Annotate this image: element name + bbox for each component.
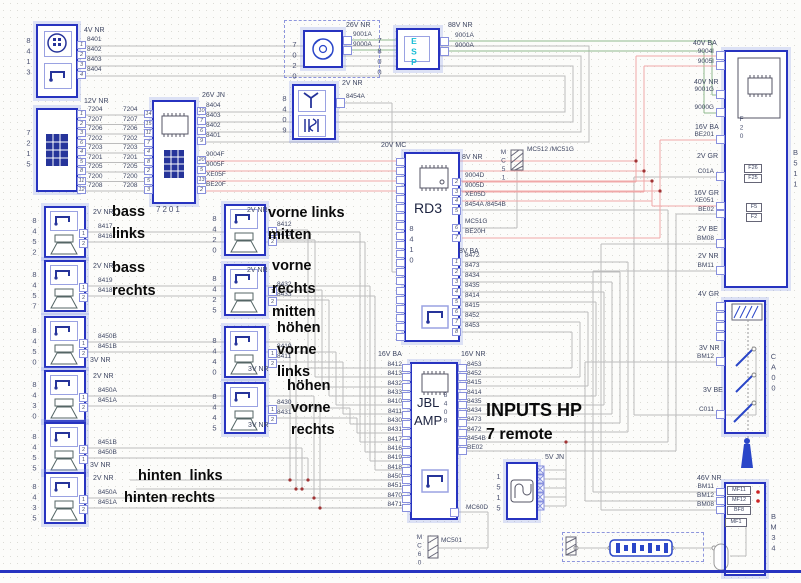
connector-icon: [422, 306, 448, 328]
speaker-icon: [49, 398, 81, 420]
pin: 2: [79, 239, 88, 248]
connector-label: 3V BE: [703, 387, 723, 394]
pin: 2: [268, 415, 277, 424]
wire-label: 8451B: [98, 343, 117, 350]
pin: 1: [268, 349, 277, 358]
page-border-bottom: [0, 570, 801, 573]
connector-label: 2V NR: [247, 207, 268, 214]
cd-disc-icon: [305, 32, 341, 66]
wire-label: 8431: [277, 409, 291, 416]
pin: 2: [79, 293, 88, 302]
wire-label: 8419: [98, 277, 112, 284]
wires-7215-left: 720472077206720272037201720572007208: [88, 107, 102, 193]
pin: 1: [79, 283, 88, 292]
amp-name-2: AMP: [414, 413, 442, 428]
wires-7201-red: 9004F9005FXE05FBE20F: [206, 152, 226, 192]
connector-label: 2V NR: [93, 209, 114, 216]
pins-amp-left: [402, 364, 411, 513]
connector-label: 2V GR: [697, 153, 718, 160]
rd3-name: RD3: [414, 200, 442, 216]
speaker-icon: [49, 500, 81, 522]
optional-box-battery: [562, 532, 704, 562]
connector-label: 2V BE: [698, 226, 718, 233]
pins-7201-left: 141511748253: [144, 110, 153, 196]
connector-icon: [50, 427, 78, 447]
relay-icon: [508, 464, 536, 518]
speaker-id: 8457: [30, 270, 39, 312]
connector-label: 4V NR: [84, 27, 105, 34]
annotation-hinten-rechts: hinten rechts: [124, 490, 215, 506]
wire-label: MC501: [441, 537, 462, 544]
wire-label: BE02: [686, 206, 714, 213]
pin: 1: [79, 339, 88, 348]
block-ca00: [724, 300, 766, 434]
connector-label: 3V NR: [248, 366, 269, 373]
pins-amp-right: [458, 364, 467, 456]
fuse-f25: F25: [744, 174, 762, 183]
connector-label: 16V BA: [378, 351, 402, 358]
block-1515: [506, 462, 538, 520]
block-id-7020: 7020: [290, 40, 299, 82]
wire-label: 8454A: [346, 93, 365, 100]
amp-name-1: JBL: [417, 395, 439, 410]
connector-label: 26V JN: [202, 92, 225, 99]
wires-7201-gray: 8404840384028401: [206, 103, 220, 143]
pins-rd3-top: 2345: [452, 178, 461, 216]
wires-rd3-bottom: 84728473843484358414841584528453: [465, 253, 479, 333]
block-id-7201: 7201: [156, 205, 182, 214]
connector-label: 3V NR: [90, 357, 111, 364]
wire-label: 8450B: [98, 449, 117, 456]
block-id-1515: 1515: [494, 472, 503, 514]
connector-label: 4V GR: [698, 291, 719, 298]
ground-id-mc60: MC60: [416, 534, 423, 568]
speaker-8455: 2 1: [44, 422, 86, 474]
pin: [440, 37, 449, 46]
connector-label: 40V BA: [693, 40, 717, 47]
speaker-8452: 1 2: [44, 206, 86, 258]
speaker-8457: 1 2: [44, 260, 86, 312]
connector-label: 16V NR: [461, 351, 486, 358]
annotation-hoehen-rechts-1: höhen: [287, 378, 331, 394]
block-8409: [292, 84, 336, 140]
coil-icon: [298, 115, 326, 137]
antenna-mast-icon: [741, 438, 753, 468]
pins-7215: 12364581112: [77, 110, 86, 196]
wire-label: C011: [686, 406, 714, 413]
speaker-id: 8425: [210, 274, 219, 316]
chip-icon: [748, 75, 772, 97]
wire-label: 8451B: [98, 439, 117, 446]
connector-label: 3V NR: [90, 462, 111, 469]
wires-amp-left: 8412841384328433841084118430843184178416…: [376, 362, 402, 511]
speaker-8430: 1 2: [44, 370, 86, 422]
wires-amp-right: 845384528415841484358434847384728454BBE0…: [467, 362, 486, 454]
speaker-icon: [49, 450, 81, 472]
connector-label: 2V NR: [93, 263, 114, 270]
pins-rd3-left: [396, 158, 405, 342]
fuse-mf11: MF11: [727, 486, 751, 495]
connector-label: 26V NR: [346, 22, 371, 29]
chip-icon: [162, 113, 188, 137]
block-jbl-amp: [410, 362, 458, 520]
fuse-mf12: MF12: [727, 496, 751, 505]
speaker-icon: [49, 288, 81, 310]
wire-label: 8417: [98, 223, 112, 230]
speaker-icon: [49, 344, 81, 366]
speaker-id: 8430: [30, 380, 39, 422]
esp-label: ESP: [409, 36, 419, 68]
wire-label: 9000A: [455, 42, 474, 49]
pins-rd3-bottom: 12345678: [452, 258, 461, 338]
connector-icon: [50, 321, 78, 341]
connector-label: 3V NR: [699, 345, 720, 352]
pin: [336, 98, 345, 108]
connector-label: 8V NR: [462, 154, 483, 161]
wire-label: 8451A: [98, 397, 117, 404]
block-id-8413: 8413: [24, 36, 33, 78]
connector-icon: [50, 211, 78, 231]
connector-label: 2V NR: [247, 267, 268, 274]
wire-label: BM11: [686, 483, 714, 490]
pins-7201-right-gray: 10769: [197, 107, 206, 147]
connector-label: 46V NR: [697, 475, 722, 482]
connector-label: 88V NR: [448, 22, 473, 29]
annotation-hoehen-rechts-2: vorne: [291, 400, 331, 416]
speaker-icon: [49, 234, 81, 256]
wires-7215-right: 720472077206720272037201720572007208: [123, 107, 137, 193]
wire-label: 8430: [277, 399, 291, 406]
block-id-ca00: CA00: [769, 352, 778, 394]
wire-label: MC60D: [466, 504, 488, 511]
speaker-id: 8452: [30, 216, 39, 258]
connector-label: 3V NR: [248, 422, 269, 429]
block-7215: [36, 108, 78, 192]
wires-rd3-top: 9004D9005DXE05D8454A /8454B: [465, 173, 506, 211]
connector-icon: [422, 470, 448, 492]
fuse-f2: F2: [746, 213, 762, 222]
wire-label: BM12: [686, 353, 714, 360]
connector-icon: [50, 265, 78, 285]
annotation-vorne-links-2: mitten: [268, 227, 312, 243]
pins-7201-right-red: 205132: [197, 156, 206, 196]
ground-label: MC512 /MC51G: [527, 146, 574, 153]
annotation-bass-links-1: bass: [112, 204, 145, 220]
pin: 1: [79, 393, 88, 402]
pins-8413: 1234: [77, 41, 86, 81]
wire-label: 8450A: [98, 387, 117, 394]
wire-label: XE051: [686, 197, 714, 204]
annotation-hinten-links: hinten links: [138, 468, 223, 484]
speaker-id: 8440: [210, 336, 219, 378]
annotation-7-remote: 7 remote: [486, 426, 553, 444]
fuse-f5: F5: [746, 203, 762, 212]
wire-label: 8418: [98, 287, 112, 294]
wires-8413: 8401840284038404: [87, 37, 101, 77]
wire-label: 9001A: [455, 32, 474, 39]
block-7201: [152, 100, 196, 204]
wire-label: C01A: [686, 168, 714, 175]
connector-label: 2V NR: [342, 80, 363, 87]
wire-label: BM11: [686, 262, 714, 269]
wire-label: 9001A: [353, 31, 372, 38]
pin: [440, 47, 449, 56]
pin: 1: [268, 405, 277, 414]
connector-icon: [230, 331, 258, 351]
wire-label: 8450B: [98, 333, 117, 340]
wire-label: 9000G: [686, 104, 714, 111]
annotation-vorne-rechts-2: rechts: [272, 281, 316, 297]
speaker-8435: 1 2: [44, 472, 86, 524]
pin: 1: [79, 229, 88, 238]
annotation-vorne-links-1: vorne links: [268, 205, 345, 221]
wire-label: 9000A: [353, 41, 372, 48]
fuse-bf8: BF8: [727, 506, 751, 515]
annotation-bass-rechts-1: bass: [112, 260, 145, 276]
wire-label: 9004I: [686, 48, 714, 55]
speaker-icon: [229, 292, 261, 314]
block-id-b511: B511: [791, 148, 800, 190]
grid-connector-icon: [38, 110, 76, 190]
pin: [450, 508, 459, 517]
block-id-8408: 8408: [442, 392, 449, 426]
pin: 1: [79, 495, 88, 504]
annotation-vorne-rechts-3: mitten: [272, 304, 316, 320]
speaker-id: 8435: [30, 482, 39, 524]
connector-label: 2V NR: [93, 475, 114, 482]
connector-label: 12V NR: [84, 98, 109, 105]
wires-rd3-top2: MC51GBE20H: [465, 219, 487, 239]
wiring-diagram: 8413 1234 4V NR 8401840284038404 7215 12…: [0, 0, 801, 583]
grid-connector-icon: [164, 150, 184, 178]
antenna-icon: [298, 90, 326, 112]
block-8413: [36, 24, 78, 98]
connector-label: 20V MC: [381, 142, 406, 149]
connector-label: 16V GR: [694, 190, 719, 197]
pin: [343, 36, 352, 45]
wire-label: 9001G: [686, 86, 714, 93]
pin: 2: [79, 349, 88, 358]
wire-label: 8450A: [98, 489, 117, 496]
connector-icon: [44, 63, 72, 89]
wire-label: 8416: [98, 233, 112, 240]
pin: 2: [79, 445, 88, 454]
annotation-bass-rechts-2: rechts: [112, 283, 156, 299]
annotation-vorne-rechts-1: vorne: [272, 258, 312, 274]
pin: 2: [79, 505, 88, 514]
ground-mc60-icon: [428, 536, 438, 558]
block-7020: [303, 30, 343, 68]
pin: [343, 46, 352, 55]
pin: 1: [79, 455, 88, 464]
speaker-id: 8420: [210, 214, 219, 256]
wire-label: 8451A: [98, 499, 117, 506]
speaker-8450: 1 2: [44, 316, 86, 368]
pins-rd3-top2: 67: [452, 224, 461, 244]
wire-label: BM08: [686, 235, 714, 242]
block-id-8409: 8409: [280, 94, 289, 136]
steering-wheel-icon: [44, 31, 72, 57]
block-id-7215: 7215: [24, 128, 33, 170]
pin: 2: [268, 359, 277, 368]
fuse-mf1: MF1: [725, 518, 747, 527]
fuse-label-f20: F20: [738, 116, 745, 142]
connector-label: 2V NR: [698, 253, 719, 260]
speaker-id: 8455: [30, 432, 39, 474]
connector-icon: [50, 375, 78, 395]
pin: 2: [79, 403, 88, 412]
connector-label: 5V JN: [545, 454, 564, 461]
annotation-inputs-hp: INPUTS HP: [486, 400, 582, 421]
connector-label: 40V NR: [694, 79, 719, 86]
connector-label: 2V NR: [93, 373, 114, 380]
connector-icon: [230, 387, 258, 407]
annotation-bass-links-2: links: [112, 226, 145, 242]
wire-label: BM12: [686, 492, 714, 499]
wire-label: BM08: [686, 501, 714, 508]
fuse-f26: F26: [744, 164, 762, 173]
speaker-icon: [229, 232, 261, 254]
ground-mc51-icon: [511, 150, 523, 170]
annotation-hoehen-rechts-3: rechts: [291, 422, 335, 438]
block-id-8410: 8410: [407, 224, 416, 266]
chip-icon: [420, 165, 448, 191]
annotation-hoehen-links-2: vorne: [277, 342, 317, 358]
speaker-id: 8445: [210, 392, 219, 434]
connector-label: 16V BA: [695, 124, 719, 131]
block-id-bm34: BM34: [769, 512, 778, 554]
wire-label: BE201: [686, 131, 714, 138]
wire-label: 9005I: [686, 58, 714, 65]
speaker-id: 8450: [30, 326, 39, 368]
annotation-hoehen-links-1: höhen: [277, 320, 321, 336]
block-id-7800: 7800: [375, 36, 384, 78]
connector-icon: [50, 477, 78, 497]
